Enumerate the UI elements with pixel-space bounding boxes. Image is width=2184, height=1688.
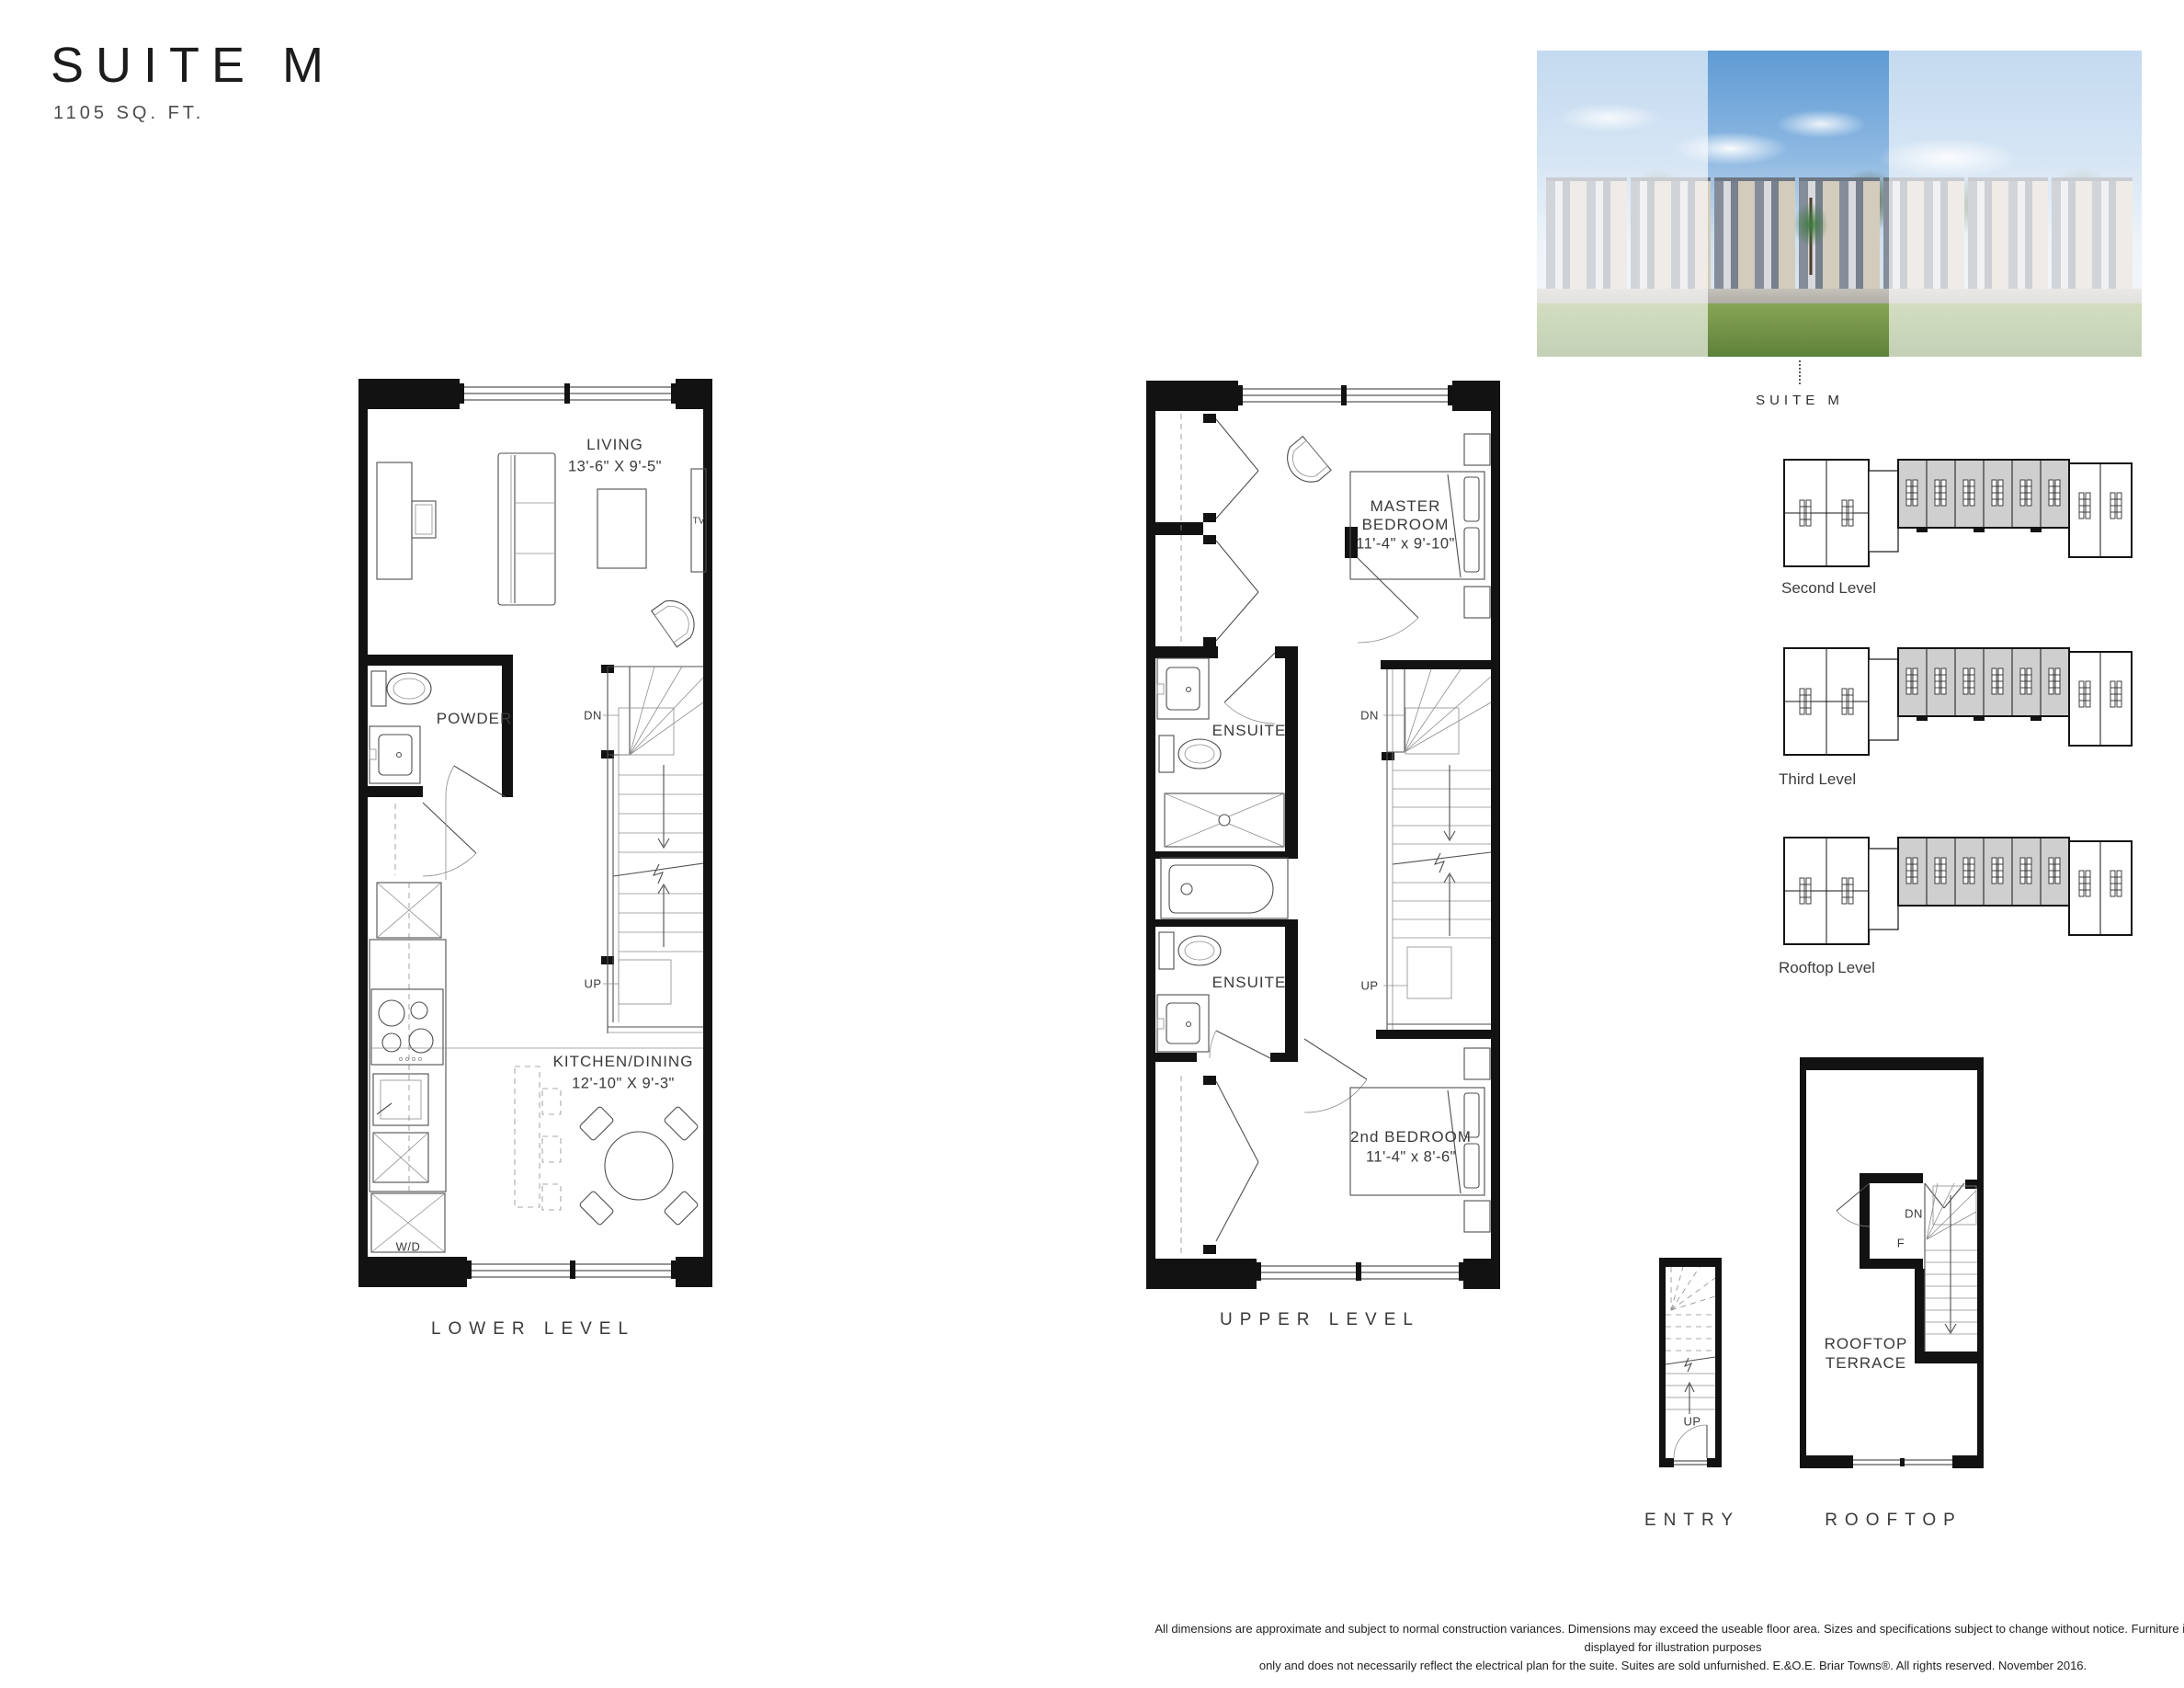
entry-plan: [1659, 1258, 1722, 1467]
master-bedroom-dims: 11'-4" x 9'-10": [1356, 536, 1455, 553]
entry-up-label: UP: [1683, 1415, 1701, 1429]
disclaimer: All dimensions are approximate and subje…: [1149, 1620, 2184, 1675]
ensuite-upper-label: ENSUITE: [1212, 722, 1287, 740]
kitchen-label: KITCHEN/DINING: [553, 1053, 694, 1071]
master-bedroom-label-1: MASTER: [1371, 497, 1441, 516]
upper-dn-label: DN: [1360, 709, 1379, 723]
bedroom2-label: 2nd BEDROOM: [1350, 1128, 1472, 1146]
foreground-tree: [1785, 198, 1837, 275]
suite-leader-line: [1799, 360, 1801, 384]
lower-up-label: UP: [584, 977, 601, 991]
rendering-caption: SUITE M: [1756, 393, 1844, 408]
lower-dn-label: DN: [584, 709, 602, 723]
entry-caption: ENTRY: [1644, 1511, 1740, 1531]
master-bedroom-label-2: BEDROOM: [1362, 516, 1450, 534]
rooftop-terrace-label-1: ROOFTOP: [1825, 1335, 1908, 1353]
rooftop-plan: [1800, 1057, 1984, 1468]
keyplan-third-level: [1779, 646, 2137, 761]
keyplan-rooftop-level: [1779, 835, 2137, 952]
rooftop-f-label: F: [1897, 1237, 1905, 1250]
lower-level-plan: [358, 379, 712, 1287]
powder-label: POWDER: [437, 710, 513, 728]
rooftop-terrace-label-2: TERRACE: [1826, 1354, 1906, 1373]
bedroom2-dims: 11'-4" x 8'-6": [1366, 1149, 1456, 1167]
living-dims: 13'-6" X 9'-5": [568, 459, 662, 476]
keyplan-rooftop-level-label: Rooftop Level: [1779, 959, 1875, 977]
upper-up-label: UP: [1360, 979, 1378, 993]
suite-area: 1105 SQ. FT.: [53, 103, 204, 124]
fade-overlay-left: [1537, 51, 1708, 357]
disclaimer-line-2: only and does not necessarily reflect th…: [1149, 1657, 2184, 1675]
keyplan-second-level: [1779, 458, 2137, 573]
fade-overlay-right: [1889, 51, 2142, 357]
rooftop-caption: ROOFTOP: [1825, 1511, 1962, 1531]
rooftop-dn-label: DN: [1905, 1207, 1923, 1221]
wd-label: W/D: [396, 1240, 421, 1254]
tv-label: TV: [693, 517, 705, 527]
lower-level-caption: LOWER LEVEL: [431, 1319, 635, 1340]
building-rendering-block: SUITE M: [1537, 51, 2142, 418]
keyplan-second-level-label: Second Level: [1781, 579, 1876, 598]
disclaimer-line-1: All dimensions are approximate and subje…: [1149, 1620, 2184, 1657]
building-rendering-image: [1537, 51, 2142, 357]
kitchen-dims: 12'-10" X 9'-3": [572, 1076, 675, 1093]
page-title: SUITE M: [51, 37, 336, 94]
living-label: LIVING: [586, 436, 643, 454]
upper-level-caption: UPPER LEVEL: [1220, 1310, 1420, 1330]
floorplan-sheet: SUITE M 1105 SQ. FT.: [0, 0, 2184, 1688]
keyplan-third-level-label: Third Level: [1779, 770, 1856, 789]
ensuite-lower-label: ENSUITE: [1212, 974, 1287, 992]
